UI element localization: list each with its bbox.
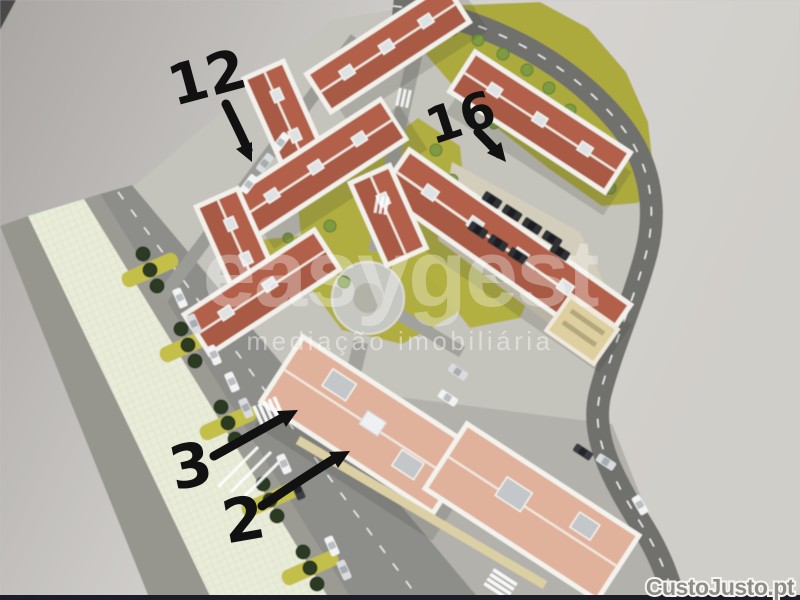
custojusto-logo: CustoJusto.pt	[646, 574, 795, 600]
watermark-tagline: mediação imobiliária	[247, 326, 554, 356]
watermark-brand: easygest	[203, 220, 599, 327]
site-plan-render: easygest mediação imobiliária 12 16 3 2 …	[0, 0, 800, 600]
